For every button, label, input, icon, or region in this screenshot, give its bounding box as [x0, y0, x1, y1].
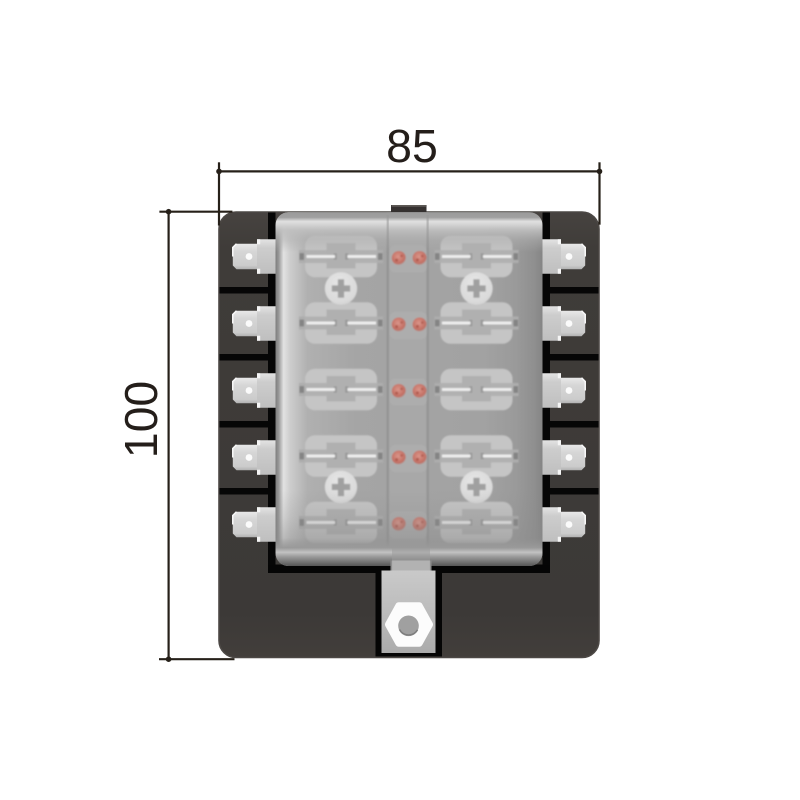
svg-text:85: 85 — [386, 120, 438, 172]
svg-text:100: 100 — [115, 381, 167, 459]
